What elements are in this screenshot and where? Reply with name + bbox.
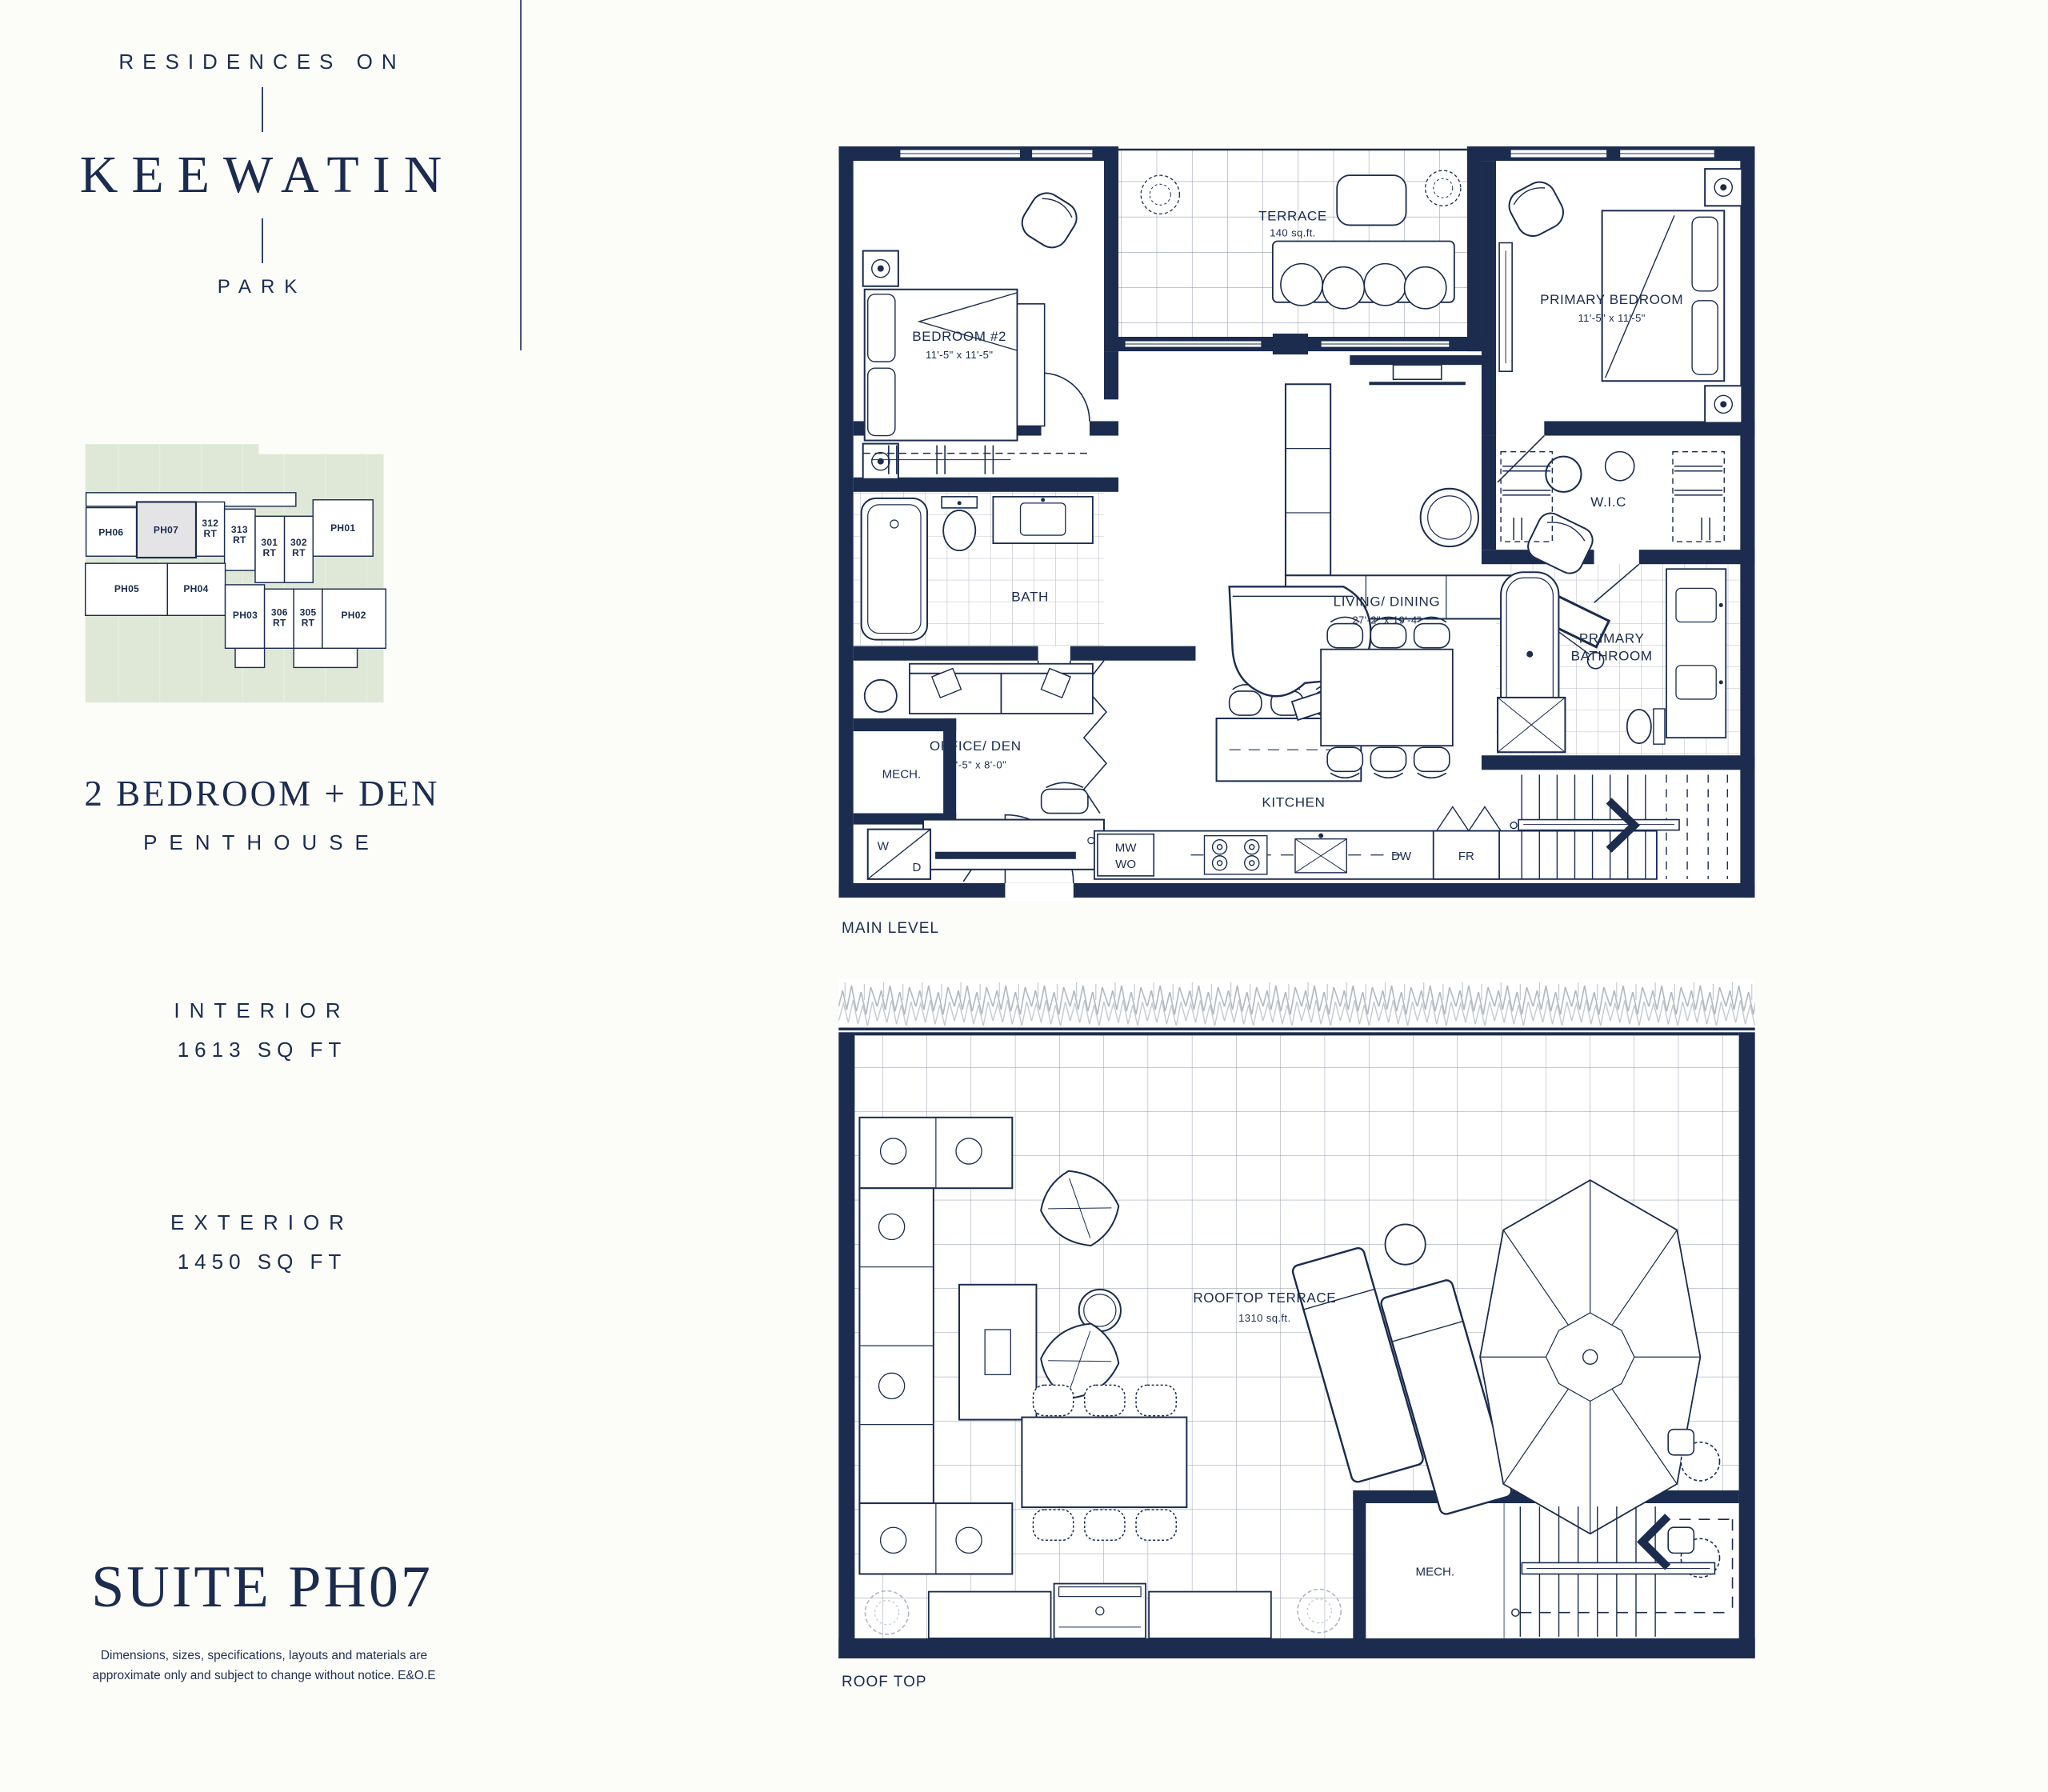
interior-label: INTERIOR — [0, 998, 524, 1023]
cushion — [956, 1138, 982, 1164]
drain — [1526, 651, 1533, 658]
unit-label: RT — [302, 618, 315, 629]
desk — [923, 820, 1104, 870]
mech-label: MECH. — [882, 767, 921, 781]
terrace-area: 140 sq.ft. — [1270, 226, 1316, 238]
dining-set — [1321, 617, 1453, 778]
main-level-floorplan: W D MW WO DW FR — [838, 146, 1755, 902]
brand-bottom-line: PARK — [0, 276, 524, 298]
bed-bench — [1018, 304, 1045, 426]
rooftop-floorplan: ROOFTOP TERRACE 1310 sq.ft. MECH. — [838, 979, 1755, 1658]
kitchen-sink — [1295, 834, 1346, 873]
primary-bedroom-label: PRIMARY BEDROOM — [1540, 292, 1683, 307]
roof-dining-set — [1022, 1385, 1186, 1540]
desk-drawer — [935, 852, 1076, 859]
dw-label: DW — [1391, 850, 1412, 863]
logo-tick-top — [262, 87, 263, 132]
unit-label: RT — [263, 547, 277, 558]
sofa-back — [910, 664, 1093, 674]
terrace-table — [1337, 175, 1406, 225]
interior-area-block: INTERIOR 1613 SQ FT — [0, 998, 524, 1062]
planter-box — [929, 1592, 1051, 1638]
unit-label: 313 — [231, 524, 248, 535]
interior-value: 1613 SQ FT — [0, 1038, 524, 1062]
side-table — [865, 680, 897, 712]
planter-box — [1149, 1592, 1271, 1638]
unit-label: RT — [204, 528, 218, 539]
bedroom2-dims: 11'-5" x 11'-5" — [926, 349, 993, 361]
coffee-table-tray — [985, 1330, 1010, 1374]
unit-label: RT — [273, 618, 286, 629]
umbrella — [1480, 1180, 1700, 1534]
living-label: LIVING/ DINING — [1334, 594, 1441, 609]
cushion — [1405, 267, 1446, 309]
wic-label: W.I.C — [1590, 494, 1626, 510]
unit-label: RT — [292, 547, 306, 558]
cushion — [881, 1138, 906, 1164]
unit-label: PH02 — [342, 610, 366, 621]
bbq — [1054, 1584, 1146, 1638]
range — [1205, 836, 1267, 874]
brand-top-line: RESIDENCES ON — [0, 50, 524, 74]
cushion — [879, 1214, 905, 1239]
rooftop-terrace-area: 1310 sq.ft. — [1238, 1312, 1290, 1324]
suite-type: 2 BEDROOM + DEN — [0, 773, 524, 814]
suite-title: SUITE PH07 — [0, 1554, 524, 1622]
unit-label: 302 — [290, 537, 307, 548]
toilet — [943, 510, 975, 550]
sectional-sofa-left — [1286, 384, 1330, 575]
dining-table — [1022, 1418, 1186, 1508]
suite-type-block: 2 BEDROOM + DEN PENTHOUSE — [0, 773, 524, 855]
terrace-label: TERRACE — [1258, 208, 1327, 223]
unit-label: 306 — [271, 606, 288, 618]
cushion — [1322, 267, 1364, 309]
bedroom2-label: BEDROOM #2 — [912, 329, 1006, 344]
disclaimer: Dimensions, sizes, specifications, layou… — [88, 1646, 440, 1686]
unit-label: PH07 — [154, 525, 178, 536]
side-table — [1546, 457, 1581, 492]
pillow — [1692, 217, 1718, 290]
cushion — [881, 1527, 906, 1553]
pillow — [1692, 301, 1718, 374]
primary-bath-label-2: BATHROOM — [1571, 649, 1653, 664]
sink — [1021, 503, 1066, 535]
exterior-area-block: EXTERIOR 1450 SQ FT — [0, 1210, 524, 1274]
exterior-label: EXTERIOR — [0, 1210, 524, 1235]
unit-label: PH01 — [330, 522, 355, 534]
cushion — [956, 1527, 982, 1553]
cushion — [1281, 264, 1322, 306]
brand-name: KEEWATIN — [11, 145, 524, 206]
mw-label: MW — [1115, 842, 1138, 855]
keyplan: PH06 PH07 312 RT 313 RT 301 RT 302 RT PH… — [77, 424, 434, 731]
roof-top-caption: ROOF TOP — [842, 1674, 927, 1691]
unit-label: RT — [233, 534, 246, 546]
roof-planter-row — [865, 1584, 1341, 1638]
side-table — [1386, 1224, 1426, 1264]
living-dims: 27'-2" x 19'-4" — [1352, 614, 1421, 626]
pillow — [868, 368, 895, 435]
unit-label: 305 — [300, 606, 317, 618]
side-table — [1668, 1527, 1694, 1553]
washer-label: W — [878, 840, 890, 854]
toilet — [1627, 710, 1651, 743]
sink — [1676, 588, 1716, 622]
cushion — [879, 1373, 905, 1398]
office-dims: 11'-5" x 8'-0" — [944, 758, 1006, 770]
rooftop-terrace-label: ROOFTOP TERRACE — [1193, 1290, 1336, 1306]
unit-label: PH03 — [233, 610, 258, 621]
dining-table — [1321, 650, 1453, 746]
drain — [890, 520, 898, 528]
hedge-planting — [838, 979, 1754, 1026]
dryer-label: D — [913, 861, 922, 874]
unit-label: PH05 — [114, 583, 139, 594]
unit-label: 312 — [202, 518, 218, 529]
pillow — [868, 294, 895, 362]
unit-label: 301 — [261, 537, 278, 548]
wo-label: WO — [1115, 858, 1136, 871]
fr-label: FR — [1458, 850, 1474, 863]
cushion — [1364, 264, 1406, 306]
office-label: OFFICE/ DEN — [930, 738, 1022, 754]
main-level-caption: MAIN LEVEL — [842, 920, 939, 938]
brand-logo: RESIDENCES ON KEEWATIN PARK — [0, 50, 524, 298]
desk-chair — [1042, 789, 1088, 813]
toilet-tank — [1654, 709, 1665, 744]
sink — [1676, 666, 1716, 699]
side-table — [1668, 1430, 1694, 1455]
mech-laundry: W D — [868, 830, 930, 879]
logo-tick-bottom — [262, 218, 263, 263]
faucet — [1041, 498, 1045, 502]
primary-bath-label-1: PRIMARY — [1579, 631, 1645, 646]
bath-label: BATH — [1011, 589, 1049, 604]
suite-class: PENTHOUSE — [0, 830, 524, 855]
primary-bedroom-dims: 11'-5" x 11'-5" — [1578, 312, 1645, 324]
roof-mech-label: MECH. — [1416, 1566, 1455, 1579]
unit-label: PH06 — [98, 526, 123, 538]
exterior-value: 1450 SQ FT — [0, 1250, 524, 1274]
unit-label: PH04 — [183, 583, 208, 594]
kitchen-label: KITCHEN — [1262, 794, 1325, 810]
